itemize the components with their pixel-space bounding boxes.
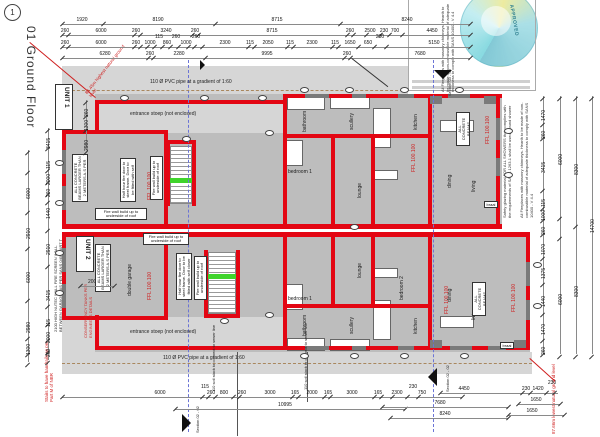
dim-left-2-label-3: 260 <box>46 189 52 197</box>
party-wall-b <box>62 232 530 237</box>
dining-u2: dining <box>448 289 454 302</box>
dim-left-2-label-6: 3415 <box>46 290 52 301</box>
corner-dark-1 <box>430 96 442 104</box>
firewall-callout-4: Fire wall build up to underside of roof <box>194 256 207 300</box>
opening-tag-12 <box>350 353 359 359</box>
opening-tag-0 <box>120 95 129 101</box>
wall-stair1-r <box>192 142 196 206</box>
window-right-u1-2 <box>496 158 500 176</box>
pvc-dash-bottom <box>62 363 532 364</box>
firewall-callout-1: Fire wall build up to underside of roof <box>95 208 147 220</box>
dim-bottom-1-label-8: 165 <box>317 390 339 396</box>
frame-v2 <box>535 0 536 90</box>
opening-tag-8 <box>55 200 64 206</box>
bedroom1-u2: bedroom 1 <box>288 297 312 303</box>
wall-hall2-left <box>164 237 168 320</box>
wall-right-u2 <box>526 237 530 350</box>
wall-col371-u1 <box>371 136 375 226</box>
beams-callout-2: ALL CONCRETE BEAMS LARGER THAN 2 METERS … <box>95 244 111 292</box>
dim-bottom-4-line <box>390 418 508 419</box>
lounge-u1: lounge <box>358 183 364 198</box>
ffl-living-u1: FFL 100.100 <box>486 116 492 144</box>
dim-left-1-tick-7 <box>25 363 30 368</box>
dim-bottom-3-line <box>382 407 508 408</box>
bedroom1-u1: bedroom 1 <box>288 170 312 176</box>
wall-stoep2-left <box>95 315 99 348</box>
dim-right-1-label-1: 260 <box>541 131 547 139</box>
dim-top-3-label-12: 115 <box>279 40 301 46</box>
dim-right-4-label-0: 14700 <box>590 219 596 233</box>
scullery-u2: scullery <box>350 317 356 334</box>
wall-stoep1-left <box>95 100 99 133</box>
dim-right-3-label-0: 8300 <box>574 164 580 175</box>
dining-u1: dining <box>448 175 454 188</box>
window-bot-4 <box>450 346 472 350</box>
section-marker-02-right <box>428 368 437 386</box>
frame-bar-1 <box>412 80 530 83</box>
ffl-garage-u2: FFL 100.100 <box>148 272 154 300</box>
dim-bottom-1-label-13: 750 <box>411 390 433 396</box>
section-marker-03 <box>434 70 452 79</box>
dim-right-1-label-4: 1000 <box>541 210 547 221</box>
dim-left-2-label-2: 2000 <box>46 174 52 185</box>
ffl-living-u2: FFL 100.100 <box>512 284 518 312</box>
dim-right-1-label-7: 1375 <box>541 268 547 279</box>
dim-top-4-label-1: 260 <box>139 51 161 57</box>
dim-left-3-label-0: 260 <box>84 109 90 117</box>
corner-dark-2 <box>484 96 496 104</box>
bathroom-u1: bathroom <box>303 111 309 132</box>
opening-tag-19 <box>182 136 191 142</box>
dim-bottom-3-label-0: 7680 <box>429 400 451 406</box>
garage-label-u2: double garage <box>128 264 134 296</box>
dim-bottom-1-tick-15 <box>460 395 465 400</box>
dim-right-2-line <box>560 96 561 354</box>
dim-top-4-label-4: 260 <box>336 51 358 57</box>
dim-top-3-label-16: 650 <box>357 40 379 46</box>
dim-bottom-5-label-2: 1420 <box>527 386 549 392</box>
opening-tag-5 <box>400 87 409 93</box>
corner-dark-3 <box>430 340 442 348</box>
dim-top-4-label-0: 6280 <box>94 51 116 57</box>
dim-right-2-label-1: 6000 <box>558 294 564 305</box>
opening-tag-3 <box>300 87 309 93</box>
window-bot-3 <box>398 346 414 350</box>
scullery-u1: scullery <box>350 113 356 130</box>
dim-right-1-label-2: 3415 <box>541 162 547 173</box>
dim-bottom-7-label-0: 1650 <box>521 408 543 414</box>
dim-bottom-6-label-0: 1650 <box>525 397 547 403</box>
dim-top-3-label-7: 1000 <box>175 40 197 46</box>
lounge-u2: lounge <box>358 263 364 278</box>
corner-dark-4 <box>514 340 526 348</box>
window-right-u1-1 <box>496 118 500 140</box>
opening-tag-11 <box>300 353 309 359</box>
wall-col428-u2 <box>428 232 432 350</box>
dim-right-1-label-6: 1070 <box>541 244 547 255</box>
wall-left-u1 <box>62 130 66 228</box>
beams-callout-4: ALL CONCRETE BEAMS LARGER THAN 2 METERS … <box>472 282 486 316</box>
dim-left-2-label-0: 3415 <box>46 138 52 149</box>
shower-glazing-note: Safety glazing material FOR ALL SHOWERS … <box>502 100 517 218</box>
window-bot-2 <box>352 346 366 350</box>
dim-top-3-line <box>62 47 470 48</box>
dim-left-1-label-1: 2910 <box>26 228 32 239</box>
dim-left-2-label-7: 115 <box>46 319 52 327</box>
dim-top-1-label-1: 8190 <box>147 17 169 23</box>
window-right-u2-2 <box>526 300 530 320</box>
counter-unit1 <box>330 97 370 109</box>
dim-right-1-label-0: 1470 <box>541 110 547 121</box>
dim-right-1-label-5: 260 <box>541 227 547 235</box>
opening-tag-21 <box>265 130 274 136</box>
unit-label-2: UNIT 2 <box>84 239 91 260</box>
pvc-dash-top <box>62 90 408 91</box>
dim-top-3-label-13: 2300 <box>301 40 323 46</box>
fireplace-note: All Fireplaces with masonry chimneys. He… <box>519 100 534 218</box>
section-02-label-b: Section 02 - 02 <box>446 365 451 392</box>
braai-u2: braai <box>500 342 514 349</box>
dim-right-3-tick-2 <box>573 355 578 360</box>
wall-col331-u2 <box>331 232 335 308</box>
dim-top-3-label-8: 260 <box>185 34 207 40</box>
tub-unit1 <box>287 97 325 110</box>
wall-garage2-bottom <box>64 316 168 320</box>
dim-left-2-label-1: 115 <box>46 161 52 169</box>
window-bot-1 <box>305 346 329 350</box>
pvc-note-bottom: 110 Ø PVC pipe at a gradient of 1:60 <box>163 356 245 362</box>
dim-bottom-1-label-5: 3000 <box>259 390 281 396</box>
dim-top-2-label-0: 260 <box>54 28 76 34</box>
dim-bottom-2-line <box>175 409 405 410</box>
dim-bottom-6-tick-1 <box>558 402 563 407</box>
dim-top-3-label-17: 230 <box>369 34 391 40</box>
dim-bottom-4-label-0: 8240 <box>434 411 456 417</box>
wall-garage1-top <box>64 130 168 134</box>
window-right-u2-1 <box>526 262 530 286</box>
dim-bottom-1-label-0: 6000 <box>149 390 171 396</box>
dim-top-2-line <box>62 35 470 36</box>
dim-bottom-1-label-9: 3000 <box>341 390 363 396</box>
wall-mid-u1 <box>285 134 428 138</box>
dim-top-4-line <box>62 58 470 59</box>
dim-left-1-label-4: 1300 <box>26 344 32 355</box>
wall-mid-u2 <box>285 304 428 308</box>
dim-top-2-label-10: 4450 <box>421 28 443 34</box>
kitchen-u2: kitchen <box>414 318 420 334</box>
pvc-note-top: 110 Ø PVC pipe at a gradient of 1:60 <box>150 80 232 86</box>
opening-tag-20 <box>220 318 229 324</box>
dim-bottom-7-line <box>508 415 564 416</box>
opening-tag-15 <box>504 128 513 134</box>
stoep-label-u2: entrance stoep (not enclosed) <box>130 330 196 336</box>
dim-top-4-label-5: 7680 <box>409 51 431 57</box>
living-u1: living <box>472 181 478 192</box>
wall-stair1-cap <box>166 140 196 144</box>
dim-left-1-label-0: 6000 <box>26 188 32 199</box>
dim-left-2-label-5: 2910 <box>46 244 52 255</box>
dim-top-3-label-9: 2300 <box>214 40 236 46</box>
dim-left-2-label-9: 260 <box>46 349 52 357</box>
section-marker-02-bottom <box>182 414 191 432</box>
floor-plan-sheet: 1 01 Ground Floor APPROVED 110 Ø PVC pip… <box>0 0 600 437</box>
dim-top-1-label-0: 1920 <box>71 17 93 23</box>
dim-left-3-label-1: 1300 <box>84 120 90 131</box>
opening-tag-18 <box>533 303 542 309</box>
firedoor-callout-2: Half hour fire door to steel frame. Door… <box>176 253 192 300</box>
dim-bottom-5-label-3: 230 <box>541 380 563 386</box>
ffl-mid-u1: FFL 100.100 <box>412 144 418 172</box>
section-arrow-top-dim <box>200 60 205 70</box>
dim-left-1-label-2: 6000 <box>26 272 32 283</box>
stoep-label-u1: entrance stoep (not enclosed) <box>130 112 196 118</box>
section-02-label-a: Section 02 - 02 <box>196 406 201 433</box>
dim-right-1-label-9: 1470 <box>541 324 547 335</box>
dim-bottom-1-line <box>62 397 462 398</box>
opening-tag-23 <box>350 224 359 230</box>
opening-tag-9 <box>55 250 64 256</box>
stair-unit2 <box>208 252 236 314</box>
window-top-2 <box>352 94 366 98</box>
wall-stoep2-bottom <box>95 346 283 350</box>
dim-right-2-label-0: 6000 <box>558 154 564 165</box>
dim-left-1-label-3: 2980 <box>26 322 32 333</box>
dim-top-2-label-6: 260 <box>339 28 361 34</box>
dim-bottom-5-line <box>440 393 558 394</box>
dim-2000-line <box>80 286 114 287</box>
dim-bottom-1-label-11: 2300 <box>386 390 408 396</box>
wall-col331-u1 <box>331 136 335 226</box>
dim-bottom-6-line <box>518 404 560 405</box>
beams-callout-1: ALL CONCRETE BEAMS LARGER THAN 2 METERS … <box>72 154 88 202</box>
dim-right-4-tick-1 <box>589 355 594 360</box>
kitchen-u1: kitchen <box>414 114 420 130</box>
frame-h1 <box>408 90 536 91</box>
unit-label-1: UNIT 1 <box>63 87 70 108</box>
sheet-number-circle: 1 <box>4 4 21 21</box>
opening-tag-10 <box>55 290 64 296</box>
party-wall-a <box>62 224 502 229</box>
window-top-3 <box>398 94 414 98</box>
dim-right-1-label-3: 115 <box>541 199 547 207</box>
dim-bottom-1-label-4: 260 <box>231 390 253 396</box>
dim-top-1-line <box>62 24 470 25</box>
approval-stamp-center <box>481 6 511 36</box>
dim-top-4-tick-6 <box>468 56 473 61</box>
opening-tag-7 <box>55 160 64 166</box>
opening-tag-2 <box>258 95 267 101</box>
page-title: 01 Ground Floor <box>24 26 38 128</box>
dim-right-1-label-10: 260 <box>541 347 547 355</box>
table-unit2 <box>440 316 474 328</box>
wall-stair2-r <box>236 250 240 316</box>
dim-bottom-7-tick-1 <box>562 413 567 418</box>
opening-tag-22 <box>265 312 274 318</box>
opening-tag-4 <box>345 87 354 93</box>
dim-left-3-label-2: 2980 <box>84 140 90 151</box>
dim-right-2-tick-3 <box>557 355 562 360</box>
garage1-door-2 <box>62 186 66 210</box>
stair-green-tread-2 <box>208 274 236 279</box>
opening-tag-16 <box>504 172 513 178</box>
wall-col428-u1 <box>428 94 432 226</box>
opening-tag-14 <box>460 353 469 359</box>
dim-bottom-3-tick-1 <box>506 405 511 410</box>
braai-u1: braai <box>484 201 498 208</box>
dim-left-2-label-4: 1440 <box>46 208 52 219</box>
opening-tag-13 <box>400 353 409 359</box>
dim-bottom-5-label-0: 4450 <box>453 386 475 392</box>
bedroom2-u2: bedroom 2 <box>400 276 406 300</box>
dim-top-2-label-1: 6000 <box>90 28 112 34</box>
dim-top-3-label-1: 6000 <box>90 40 112 46</box>
dim-right-3-label-1: 8300 <box>574 286 580 297</box>
window-top-1 <box>305 94 329 98</box>
frame-bar-2 <box>412 86 530 89</box>
island-unit1 <box>373 170 398 180</box>
opening-tag-6 <box>455 87 464 93</box>
firewall-callout-2: Fire wall build up to underside of roof <box>143 233 189 245</box>
opening-tag-17 <box>533 262 542 268</box>
beams-callout-3: ALL CONCRETE BEAMS LARGER THAN 2 METERS … <box>456 112 470 146</box>
lowest-ground-note: 87.66m lowest natural ground level <box>551 364 556 434</box>
dim-top-2-label-5: 8715 <box>261 28 283 34</box>
wall-col283-u1 <box>283 94 287 226</box>
dim-top-3-label-18: 5150 <box>423 40 445 46</box>
firewall-callout-3: Fire wall build up to underside of roof <box>150 156 163 200</box>
frame-v1 <box>408 0 409 90</box>
wall-stair1-l <box>166 142 170 206</box>
dim-top-1-label-2: 8715 <box>266 17 288 23</box>
dim-top-4-label-3: 9995 <box>256 51 278 57</box>
wall-col371-u2 <box>371 232 375 308</box>
island-unit2 <box>373 268 398 278</box>
wall-col283-u2 <box>283 232 287 350</box>
firedoor-callout-1: Half hour fire door to steel frame. Door… <box>120 158 136 202</box>
dim-left-2-label-8: 2000 <box>46 332 52 343</box>
dim-top-2-label-2: 260 <box>125 28 147 34</box>
dim-top-3-label-0: 260 <box>54 40 76 46</box>
soil-stack-note-1: 110 soil stack to connect to sewer line <box>212 325 217 392</box>
appliances-unit1 <box>373 108 391 148</box>
opening-tag-1 <box>200 95 209 101</box>
dim-top-4-label-2: 2280 <box>168 51 190 57</box>
dim-bottom-2-label-0: 10995 <box>274 402 296 408</box>
dim-top-1-label-3: 8240 <box>396 17 418 23</box>
dim-top-3-label-11: 2050 <box>257 40 279 46</box>
